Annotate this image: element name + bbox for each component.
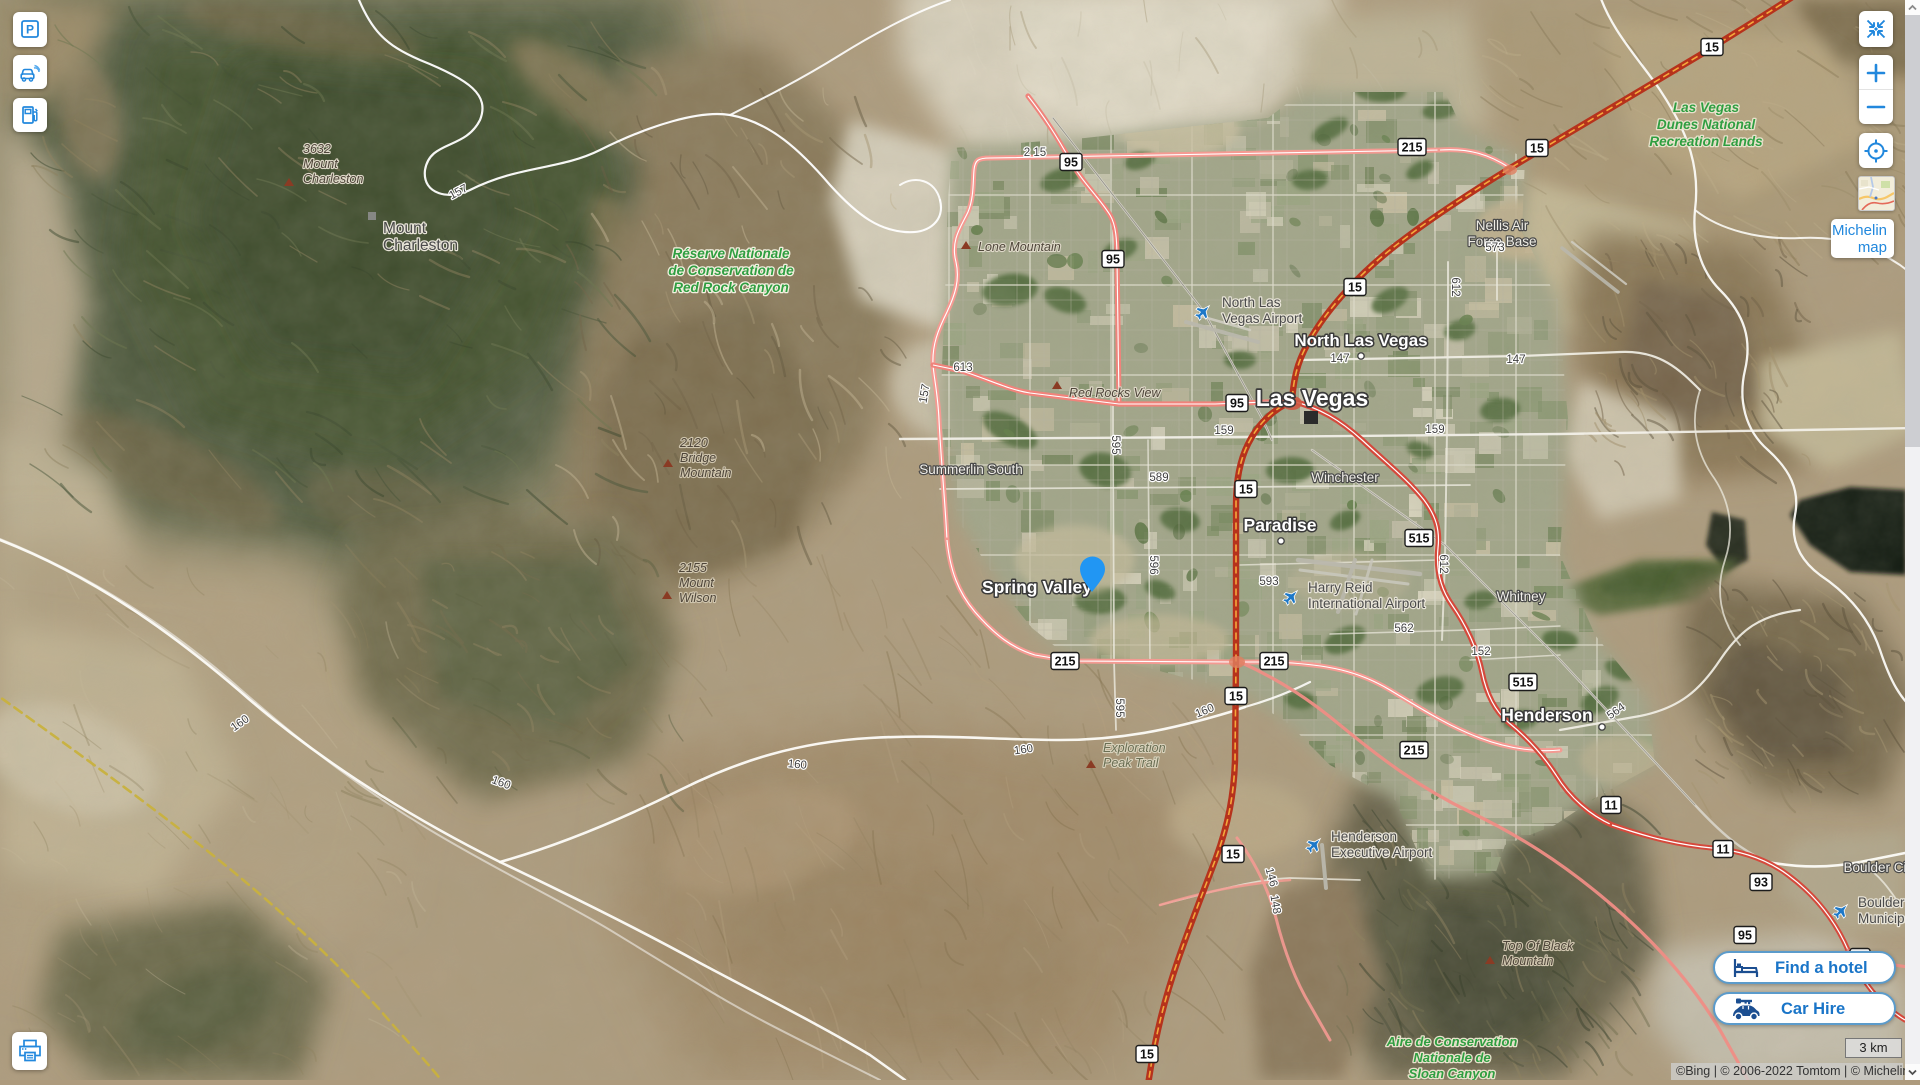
- svg-text:Boulder Ci: Boulder Ci: [1843, 860, 1906, 875]
- svg-text:Whitney: Whitney: [1497, 589, 1546, 604]
- svg-text:Wilson: Wilson: [679, 591, 716, 605]
- svg-text:15: 15: [1348, 281, 1362, 295]
- svg-text:3632: 3632: [303, 142, 331, 156]
- svg-text:515: 515: [1409, 532, 1430, 546]
- svg-text:595: 595: [1113, 698, 1125, 717]
- svg-text:15: 15: [1705, 41, 1719, 55]
- svg-text:15: 15: [1140, 1048, 1154, 1062]
- svg-text:160: 160: [787, 758, 807, 772]
- svg-text:95: 95: [1230, 397, 1244, 411]
- svg-text:Réserve Nationale: Réserve Nationale: [672, 246, 790, 261]
- svg-text:11: 11: [1716, 843, 1729, 857]
- svg-text:596: 596: [1147, 555, 1159, 574]
- svg-text:15: 15: [1226, 848, 1240, 862]
- svg-text:2 15: 2 15: [1024, 147, 1046, 159]
- svg-text:159: 159: [1425, 424, 1444, 436]
- svg-text:573: 573: [1485, 242, 1504, 254]
- svg-text:2120: 2120: [679, 436, 708, 450]
- svg-text:95: 95: [1106, 253, 1120, 267]
- svg-text:562: 562: [1394, 623, 1413, 635]
- svg-text:Nationale de: Nationale de: [1413, 1050, 1490, 1065]
- svg-text:Mountain: Mountain: [1502, 954, 1553, 968]
- svg-text:15: 15: [1530, 142, 1544, 156]
- svg-text:159: 159: [1214, 425, 1233, 437]
- svg-text:147: 147: [1330, 353, 1349, 365]
- svg-text:Mount: Mount: [383, 220, 427, 237]
- svg-text:Mountain: Mountain: [680, 466, 731, 480]
- svg-text:Aire de Conservation: Aire de Conservation: [1386, 1034, 1518, 1049]
- svg-text:95: 95: [1064, 156, 1078, 170]
- svg-text:Lone Mountain: Lone Mountain: [978, 240, 1061, 254]
- svg-text:Las Vegas: Las Vegas: [1673, 100, 1740, 115]
- svg-text:de Conservation de: de Conservation de: [668, 263, 794, 278]
- svg-text:Charleston: Charleston: [303, 172, 363, 186]
- svg-text:147: 147: [1506, 354, 1525, 366]
- svg-text:Charleston: Charleston: [383, 237, 458, 254]
- svg-text:North Las Vegas: North Las Vegas: [1294, 331, 1427, 350]
- svg-text:95: 95: [1738, 929, 1752, 943]
- svg-text:Paradise: Paradise: [1244, 515, 1317, 535]
- svg-text:Sloan Canyon: Sloan Canyon: [1409, 1066, 1496, 1080]
- svg-text:152: 152: [1471, 646, 1490, 658]
- svg-text:612: 612: [1437, 554, 1449, 573]
- svg-text:515: 515: [1513, 676, 1534, 690]
- svg-text:215: 215: [1402, 141, 1423, 155]
- svg-text:Harry Reid: Harry Reid: [1308, 580, 1373, 595]
- svg-text:Mount: Mount: [679, 576, 714, 590]
- svg-text:North Las: North Las: [1222, 295, 1281, 310]
- svg-text:215: 215: [1055, 655, 1076, 669]
- svg-text:Nellis Air: Nellis Air: [1476, 218, 1529, 233]
- svg-text:595: 595: [1109, 435, 1121, 454]
- svg-text:613: 613: [953, 362, 972, 374]
- svg-text:Exploration: Exploration: [1103, 741, 1166, 755]
- svg-text:Top Of Black: Top Of Black: [1502, 939, 1574, 953]
- svg-text:593: 593: [1259, 576, 1278, 588]
- svg-text:Dunes National: Dunes National: [1657, 117, 1756, 132]
- svg-text:589: 589: [1149, 472, 1168, 484]
- svg-text:P: P: [26, 23, 34, 37]
- svg-text:93: 93: [1754, 876, 1768, 890]
- svg-text:15: 15: [1239, 483, 1253, 497]
- svg-text:Vegas Airport: Vegas Airport: [1222, 311, 1303, 326]
- svg-text:Winchester: Winchester: [1311, 470, 1379, 485]
- svg-text:Henderson: Henderson: [1331, 829, 1397, 844]
- svg-text:International Airport: International Airport: [1308, 596, 1425, 611]
- svg-text:Recreation Lands: Recreation Lands: [1649, 134, 1763, 149]
- svg-text:Executive Airport: Executive Airport: [1331, 845, 1433, 860]
- svg-text:Spring Valley: Spring Valley: [982, 577, 1092, 597]
- svg-text:Peak Trail: Peak Trail: [1103, 756, 1160, 770]
- svg-text:11: 11: [1604, 799, 1617, 813]
- svg-text:Red Rock Canyon: Red Rock Canyon: [673, 280, 789, 295]
- svg-text:Las Vegas: Las Vegas: [1256, 385, 1369, 411]
- svg-text:215: 215: [1404, 744, 1425, 758]
- svg-text:Mount: Mount: [303, 157, 338, 171]
- svg-text:Summerlin South: Summerlin South: [919, 462, 1023, 477]
- svg-text:Bridge: Bridge: [680, 451, 716, 465]
- svg-text:612: 612: [1449, 277, 1461, 296]
- svg-text:215: 215: [1264, 655, 1285, 669]
- svg-text:15: 15: [1229, 690, 1243, 704]
- svg-text:Henderson: Henderson: [1501, 705, 1592, 725]
- svg-text:2155: 2155: [678, 561, 707, 575]
- svg-text:Red Rocks View: Red Rocks View: [1069, 386, 1161, 400]
